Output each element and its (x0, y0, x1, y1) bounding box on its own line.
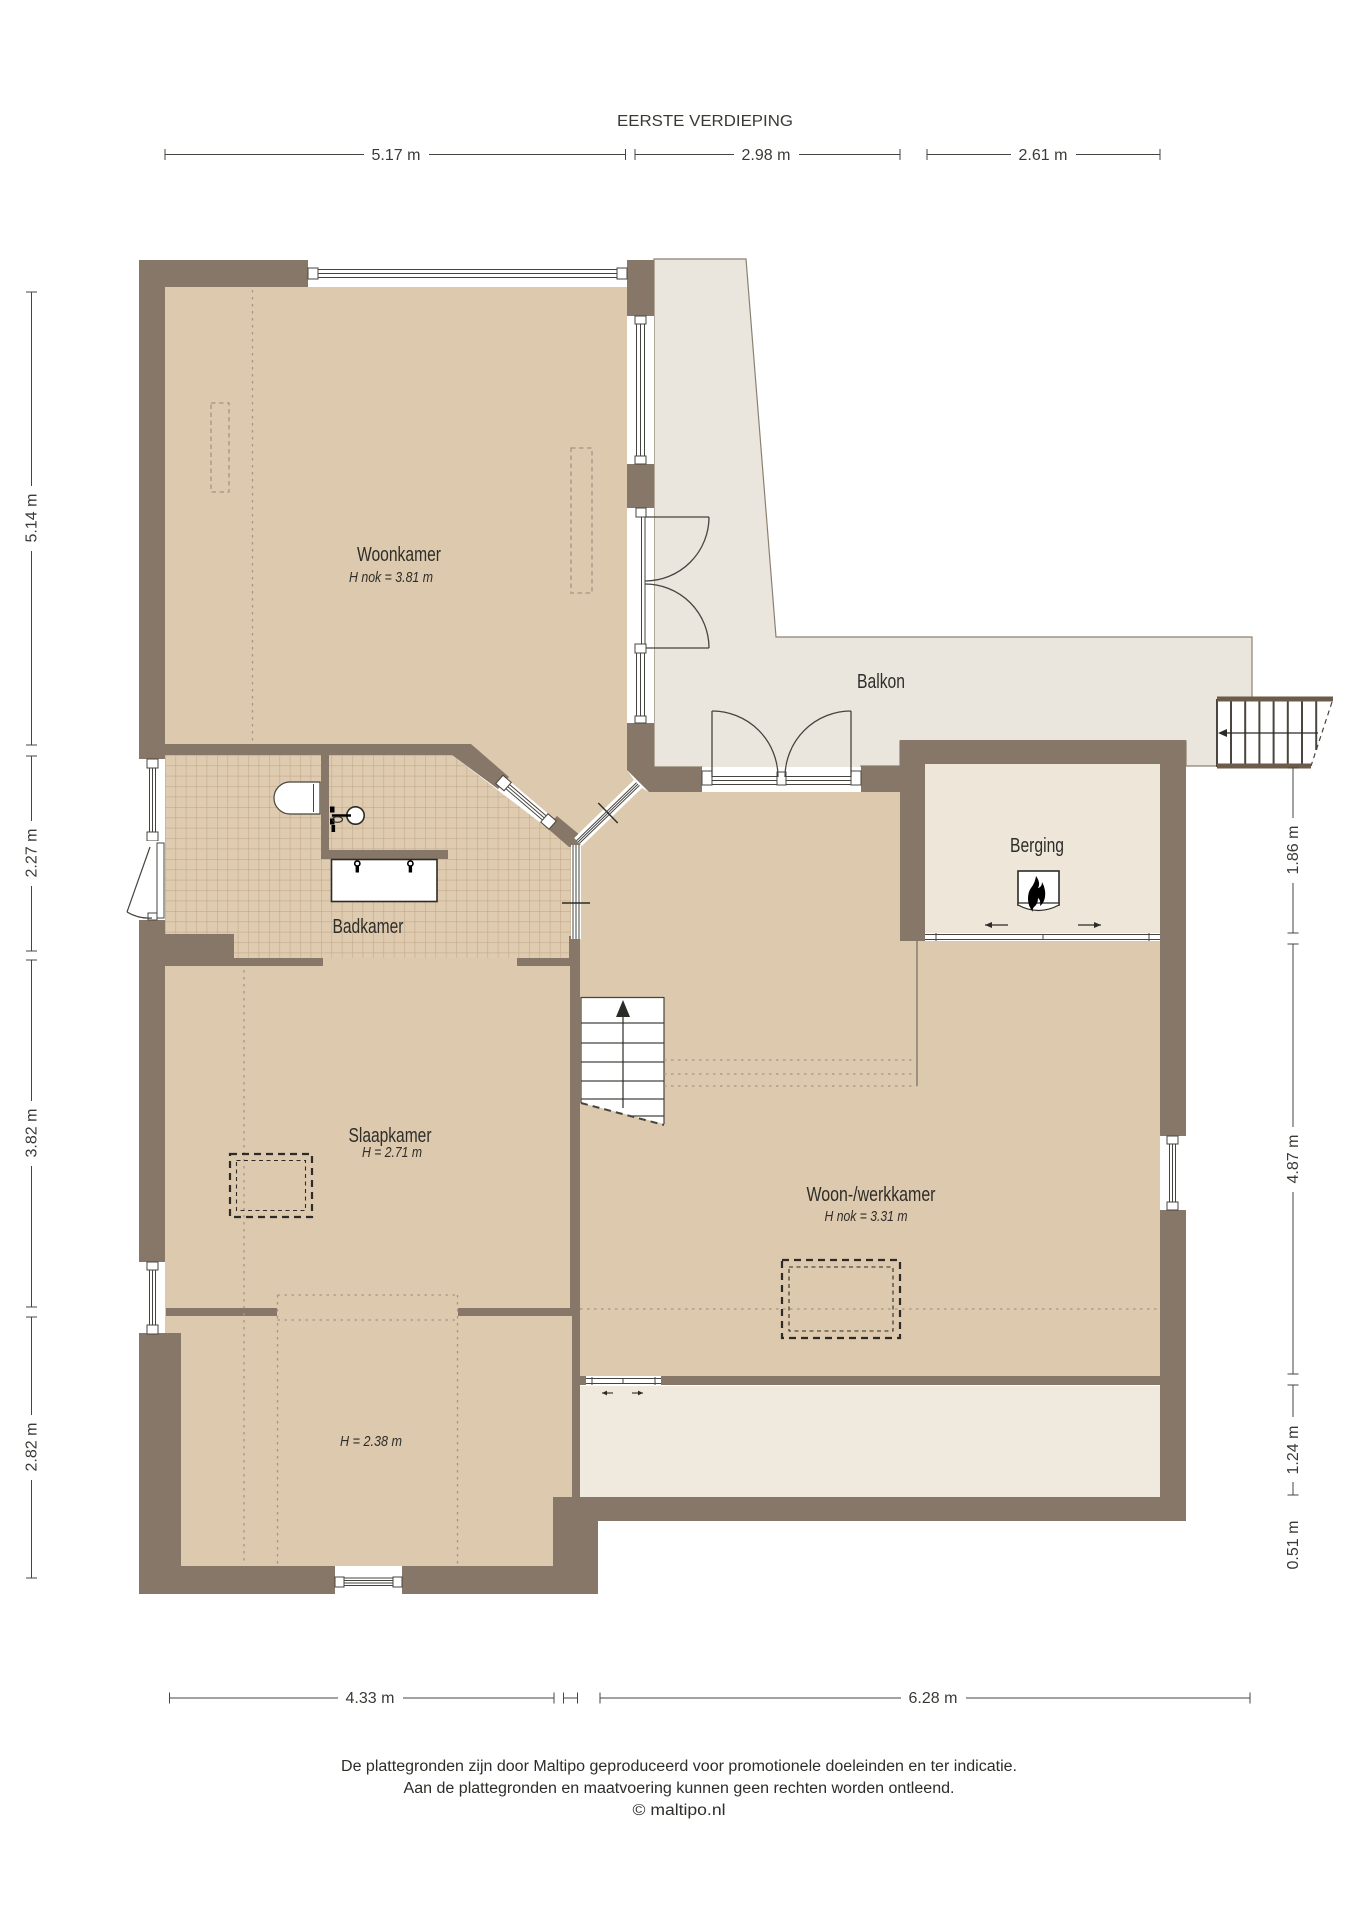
svg-text:3.82 m: 3.82 m (24, 1109, 41, 1158)
svg-text:Berging: Berging (1010, 835, 1064, 857)
svg-text:2.82 m: 2.82 m (24, 1423, 41, 1472)
svg-text:H nok = 3.81 m: H nok = 3.81 m (349, 569, 433, 586)
svg-text:EERSTE VERDIEPING: EERSTE VERDIEPING (617, 113, 793, 130)
svg-text:5.17 m: 5.17 m (372, 147, 421, 164)
svg-text:Balkon: Balkon (857, 671, 905, 693)
svg-text:Badkamer: Badkamer (333, 916, 404, 938)
svg-text:Aan de plattegronden en maatvo: Aan de plattegronden en maatvoering kunn… (404, 1780, 955, 1797)
svg-text:2.27 m: 2.27 m (24, 829, 41, 878)
svg-text:1.86 m: 1.86 m (1285, 826, 1302, 875)
svg-text:Woonkamer: Woonkamer (357, 544, 441, 566)
svg-text:0.51 m: 0.51 m (1285, 1521, 1302, 1570)
svg-text:© maltipo.nl: © maltipo.nl (633, 1802, 726, 1819)
svg-text:1.24 m: 1.24 m (1285, 1426, 1302, 1475)
svg-text:4.33 m: 4.33 m (346, 1690, 395, 1707)
svg-text:H = 2.38 m: H = 2.38 m (340, 1433, 402, 1450)
svg-text:2.98 m: 2.98 m (742, 147, 791, 164)
svg-text:2.61 m: 2.61 m (1019, 147, 1068, 164)
svg-text:5.14 m: 5.14 m (24, 494, 41, 543)
svg-text:H nok = 3.31 m: H nok = 3.31 m (825, 1208, 908, 1225)
svg-text:6.28 m: 6.28 m (909, 1690, 958, 1707)
svg-text:Woon-/werkkamer: Woon-/werkkamer (807, 1184, 936, 1206)
svg-text:4.87 m: 4.87 m (1285, 1135, 1302, 1184)
svg-text:De plattegronden zijn door Mal: De plattegronden zijn door Maltipo gepro… (341, 1758, 1017, 1775)
svg-text:H = 2.71 m: H = 2.71 m (362, 1144, 422, 1161)
